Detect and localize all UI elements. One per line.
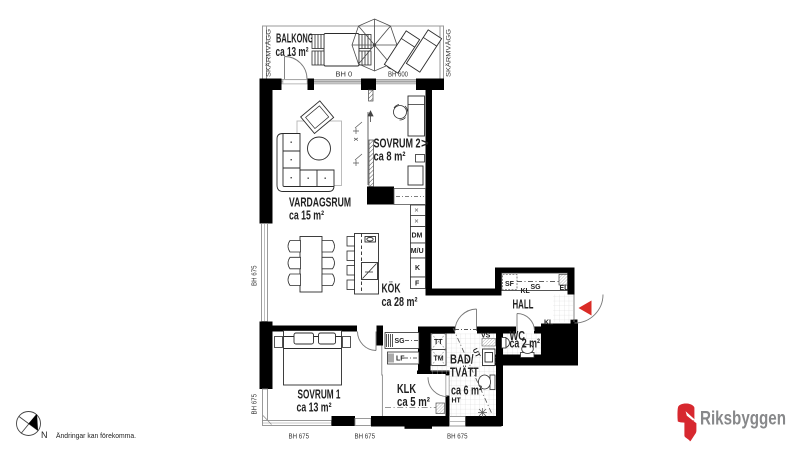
svg-text:EL: EL: [560, 285, 570, 292]
svg-text:Ändringar kan förekomma.: Ändringar kan förekomma.: [56, 431, 136, 440]
svg-text:SKÄRMVÄGG: SKÄRMVÄGG: [446, 29, 453, 77]
svg-text:ca 13 m²: ca 13 m²: [276, 44, 309, 59]
svg-text:LF: LF: [396, 356, 405, 363]
svg-text:ca 6 m²: ca 6 m²: [451, 383, 482, 398]
svg-text:ca 5 m²: ca 5 m²: [397, 394, 430, 409]
svg-text:ca 2 m²: ca 2 m²: [510, 336, 541, 351]
svg-text:ca 28 m²: ca 28 m²: [382, 294, 418, 309]
svg-text:>: >: [421, 136, 429, 151]
svg-text:DM: DM: [412, 233, 423, 240]
svg-text:BH 0: BH 0: [336, 70, 353, 79]
svg-text:BH 675: BH 675: [447, 432, 468, 441]
svg-text:x: x: [353, 137, 360, 141]
svg-text:N: N: [41, 430, 48, 440]
svg-text:TM: TM: [434, 356, 444, 363]
svg-text:SKÄRMVÄGG: SKÄRMVÄGG: [266, 29, 273, 77]
svg-text:K: K: [415, 265, 420, 272]
svg-text:SG: SG: [395, 338, 406, 345]
svg-text:ca 15 m²: ca 15 m²: [289, 208, 324, 223]
svg-text:KL: KL: [521, 288, 531, 295]
svg-text:TT: TT: [434, 339, 443, 346]
svg-text:BH 675: BH 675: [250, 394, 259, 415]
svg-text:Riksbyggen: Riksbyggen: [700, 408, 786, 430]
svg-text:TVÄTT: TVÄTT: [450, 365, 479, 380]
svg-text:HT: HT: [452, 398, 462, 405]
svg-text:SF: SF: [505, 281, 515, 288]
svg-text:HALL: HALL: [513, 297, 534, 312]
svg-text:ca 8 m²: ca 8 m²: [374, 149, 406, 164]
svg-text:BH 600: BH 600: [388, 70, 408, 79]
svg-text:ca 13 m²: ca 13 m²: [297, 400, 332, 415]
svg-text:BH 675: BH 675: [289, 432, 310, 441]
svg-text:F: F: [415, 281, 420, 288]
svg-text:KL: KL: [544, 320, 554, 327]
svg-text:M/U: M/U: [411, 248, 424, 255]
svg-text:BH 675: BH 675: [355, 432, 376, 441]
svg-text:BH 675: BH 675: [250, 266, 259, 287]
svg-text:SG: SG: [531, 284, 542, 291]
